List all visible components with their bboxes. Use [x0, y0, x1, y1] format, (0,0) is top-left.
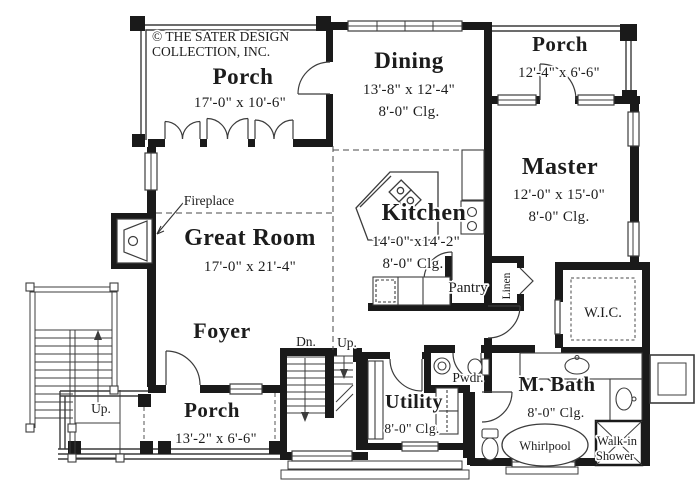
interior-stairs: [287, 356, 353, 414]
room-label-master-bath: M. Bath: [519, 372, 596, 396]
room-label-kitchen: Kitchen: [382, 200, 467, 226]
room-dims-master: 12'-0" x 15'-0": [513, 187, 605, 203]
room-ceiling-utility: 8'-0" Clg.: [384, 421, 439, 436]
room-label-utility: Utility: [385, 391, 443, 413]
whirlpool-label: Whirlpool: [519, 439, 571, 453]
pantry-label: Pantry: [448, 280, 488, 296]
fireplace-leader: [157, 203, 183, 234]
stairs-down-label: Dn.: [296, 334, 316, 349]
room-ceiling-kitchen: 8'-0" Clg.: [383, 256, 444, 272]
room-label-great-room: Great Room: [184, 225, 316, 251]
powder-sink-icon: [434, 358, 450, 374]
exterior-up-arrowhead: [94, 330, 102, 340]
linen-label: Linen: [501, 272, 513, 299]
wic-label: W.I.C.: [584, 305, 622, 321]
floor-plan: © THE SATER DESIGN COLLECTION, INC. Porc…: [0, 0, 700, 495]
room-ceiling-master: 8'-0" Clg.: [529, 209, 590, 225]
stairs-up-label: Up.: [337, 335, 357, 350]
powder-label: Pwdr.: [452, 370, 483, 385]
room-label-foyer: Foyer: [193, 318, 250, 343]
room-dims-porch-upper-right: 12'-4" x 6'-6": [518, 65, 600, 81]
room-label-porch-lower: Porch: [184, 398, 240, 422]
room-dims-great-room: 17'-0" x 21'-4": [204, 259, 296, 275]
room-dims-porch-upper-left: 17'-0" x 10'-6": [194, 95, 286, 111]
fireplace: [117, 219, 152, 263]
bath-toilet-icon: [482, 429, 498, 438]
room-dims-porch-lower: 13'-2" x 6'-6": [175, 431, 257, 447]
fireplace-label: Fireplace: [184, 193, 234, 208]
shower-label-line-2: Shower: [596, 449, 635, 463]
room-label-dining: Dining: [374, 48, 443, 73]
room-label-porch-upper-left: Porch: [213, 64, 274, 89]
copyright-line-1: © THE SATER DESIGN: [152, 29, 289, 44]
exterior-stairs-up-label: Up.: [91, 401, 111, 416]
exterior-pad: [650, 355, 694, 403]
walls: [68, 16, 650, 466]
bath-sink2-icon: [616, 388, 632, 410]
floor-plan-drawing: © THE SATER DESIGN COLLECTION, INC. Porc…: [0, 0, 700, 495]
copyright-line-2: COLLECTION, INC.: [152, 44, 270, 59]
room-label-porch-upper-right: Porch: [532, 32, 588, 56]
shower-label-line-1: Walk-in: [597, 434, 638, 448]
room-ceiling-dining: 8'-0" Clg.: [379, 104, 440, 120]
room-dims-kitchen: 14'-0" x14'-2": [372, 234, 460, 250]
room-dims-dining: 13'-8" x 12'-4": [363, 82, 455, 98]
room-label-master: Master: [522, 154, 598, 180]
room-ceiling-master-bath: 8'-0" Clg.: [527, 406, 584, 421]
